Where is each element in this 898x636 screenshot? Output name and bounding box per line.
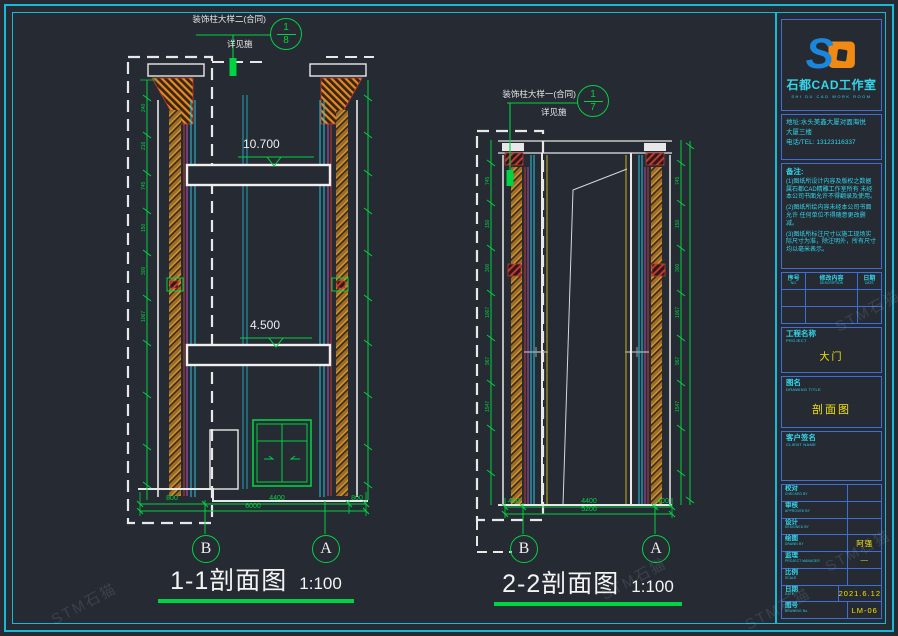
callout-sheet: 8	[283, 36, 289, 46]
svg-text:1547: 1547	[675, 401, 681, 412]
grid-bubble-a: A	[312, 535, 340, 563]
sign-row-date: 日期DATE 2021.6.12	[782, 586, 881, 603]
grid-bubble-b: B	[192, 535, 220, 563]
view-title-1-1: 1-1剖面图 1:100	[158, 561, 354, 603]
studio-logo-box: S 石都CAD工作室 SHI DU CAD WORK ROOM	[781, 19, 882, 111]
view-2-2-geometry: 745 150 300 1067 967 1547 745 150 300 10…	[477, 103, 694, 552]
svg-text:300: 300	[485, 263, 491, 272]
row-sublabel: PROJECT MANAGER	[785, 560, 844, 563]
revision-row	[782, 290, 881, 307]
svg-text:150: 150	[485, 219, 491, 228]
col-sublabel: NO.	[791, 282, 797, 285]
dim-label: 4400	[581, 498, 597, 505]
address-line1: 地址:水头美鑫大厦对面海悦	[786, 118, 877, 128]
drawing-title-box: 图名 DRAWING TITLE 剖面图	[781, 376, 882, 428]
sign-row-checked: 校对CHECKED BY	[782, 485, 881, 502]
row-sublabel: CHECKED BY	[785, 493, 844, 496]
callout-label: 装饰柱大样二(合同)	[186, 13, 266, 25]
revision-table: 序号 NO. 修改内容 DESCRIPTION 日期 DATE	[781, 272, 882, 324]
svg-text:745: 745	[485, 176, 491, 185]
studio-name: 石都CAD工作室	[787, 76, 877, 93]
drawing-title-value: 剖面图	[786, 401, 877, 417]
row-sublabel: DRAWING No.	[785, 610, 844, 613]
sign-row-designed: 设计DESIGNED BY	[782, 519, 881, 536]
svg-text:1067: 1067	[141, 311, 147, 322]
view-title-2-2: 2-2剖面图 1:100	[494, 564, 682, 606]
view-scale-text: 1:100	[299, 574, 342, 594]
client-sublabel: CLIENT NAME	[786, 442, 877, 447]
view-scale-text: 1:100	[631, 577, 674, 597]
address-line2: 大厦三楼	[786, 128, 877, 138]
address-box: 地址:水头美鑫大厦对面海悦 大厦三楼 电话/TEL: 13123116337	[781, 114, 882, 160]
notes-box: 备注: (1)图纸所设计内容及版权之数据属石都CAD精雕工作室所有 未经本公司书…	[781, 163, 882, 269]
title-underline	[158, 599, 354, 603]
dim-label: 800	[351, 495, 363, 502]
row-sublabel: APPROVED BY	[785, 510, 844, 513]
svg-text:300: 300	[675, 263, 681, 272]
svg-text:745: 745	[675, 176, 681, 185]
svg-text:216: 216	[141, 141, 147, 150]
sign-row-scale: 比例SCALE	[782, 569, 881, 586]
col-sublabel: DESCRIPTION	[820, 282, 843, 285]
detail-callout-bubble: 1 7	[577, 85, 609, 117]
notes-title: 备注:	[786, 167, 877, 177]
revision-row	[782, 307, 881, 323]
dim-label: 800	[166, 495, 178, 502]
sign-row-approved: 审核APPROVED BY	[782, 502, 881, 519]
studio-logo-icon: S	[805, 31, 859, 75]
view-title-text: 2-2剖面图	[502, 564, 619, 600]
svg-text:150: 150	[675, 219, 681, 228]
project-label: 工程名称	[786, 330, 877, 338]
project-box: 工程名称 PROJECT 大门	[781, 327, 882, 373]
callout-sheet: 7	[590, 103, 596, 113]
row-value	[848, 502, 881, 518]
view-1-1-geometry: 240 216 745 150 300 1067	[128, 35, 374, 534]
drawing-title-label: 图名	[786, 379, 877, 387]
svg-text:1067: 1067	[675, 307, 681, 318]
callout-number: 1	[590, 90, 596, 100]
row-value	[848, 485, 881, 501]
row-value: —	[848, 552, 881, 568]
svg-text:967: 967	[675, 356, 681, 365]
row-value: 2021.6.12	[839, 586, 881, 602]
callout-sublabel: 详见施	[541, 106, 567, 118]
row-value	[848, 569, 881, 585]
sign-row-number: 图号DRAWING No. LM-06	[782, 602, 881, 618]
detail-callout-bubble: 1 8	[270, 18, 302, 50]
row-value: LM-06	[848, 602, 881, 618]
revision-col-no: 序号 NO.	[782, 273, 806, 289]
dim-label-total: 6000	[245, 503, 261, 510]
level-label-lower: 4.500	[250, 318, 280, 332]
section-linework: 240 216 745 150 300 1067	[13, 13, 775, 623]
col-sublabel: DATE	[865, 282, 874, 285]
title-block: S 石都CAD工作室 SHI DU CAD WORK ROOM 地址:水头美鑫大…	[775, 13, 885, 623]
grid-bubble-b: B	[510, 535, 538, 563]
row-sublabel: SCALE	[785, 577, 844, 580]
view-title-text: 1-1剖面图	[170, 561, 287, 597]
studio-subtitle: SHI DU CAD WORK ROOM	[791, 94, 871, 99]
svg-text:240: 240	[141, 103, 147, 112]
svg-text:150: 150	[141, 223, 147, 232]
level-label-upper: 10.700	[243, 137, 280, 151]
project-sublabel: PROJECT	[786, 338, 877, 343]
svg-text:745: 745	[141, 181, 147, 190]
title-underline	[494, 602, 682, 606]
cad-sheet: 240 216 745 150 300 1067	[0, 0, 898, 636]
sign-row-manager: 监理PROJECT MANAGER —	[782, 552, 881, 569]
row-sublabel: DRAWN BY	[785, 543, 844, 546]
row-sublabel: DESIGNED BY	[785, 526, 844, 529]
svg-text:300: 300	[141, 266, 147, 275]
note-item: (3)图纸所标注尺寸以施工现场实际尺寸为准，除注明外，所有尺寸均以毫米表示。	[786, 232, 877, 255]
row-value: 阿强	[848, 535, 881, 551]
revision-col-date: 日期 DATE	[858, 273, 881, 289]
drawing-title-sublabel: DRAWING TITLE	[786, 387, 877, 392]
row-value	[848, 519, 881, 535]
svg-text:1547: 1547	[485, 401, 491, 412]
svg-text:1067: 1067	[485, 307, 491, 318]
dim-label: 400	[508, 498, 520, 505]
revision-header: 序号 NO. 修改内容 DESCRIPTION 日期 DATE	[782, 273, 881, 290]
project-value: 大门	[786, 348, 877, 363]
revision-col-desc: 修改内容 DESCRIPTION	[806, 273, 857, 289]
callout-label: 装饰柱大样一(合同)	[500, 88, 576, 100]
svg-text:967: 967	[485, 356, 491, 365]
grid-bubble-a: A	[642, 535, 670, 563]
svg-text:S: S	[805, 31, 833, 75]
callout-sublabel: 详见施	[227, 38, 253, 50]
client-box: 客户签名 CLIENT NAME	[781, 431, 882, 481]
phone-line: 电话/TEL: 13123116337	[786, 138, 877, 148]
sign-row-drawn: 绘图DRAWN BY 阿强	[782, 535, 881, 552]
signature-table: 校对CHECKED BY 审核APPROVED BY 设计DESIGNED BY…	[781, 484, 882, 619]
callout-number: 1	[283, 23, 289, 33]
note-item: (2)图纸所绘内容未经本公司书面允许 任何单位不得随意更改删减。	[786, 205, 877, 228]
row-sublabel: DATE	[785, 593, 835, 596]
note-item: (1)图纸所设计内容及版权之数据属石都CAD精雕工作室所有 未经本公司书面允许不…	[786, 179, 877, 202]
dim-label: 4400	[269, 495, 285, 502]
client-label: 客户签名	[786, 434, 877, 442]
dim-label: 400	[657, 498, 669, 505]
dim-label-total: 5200	[581, 506, 597, 513]
